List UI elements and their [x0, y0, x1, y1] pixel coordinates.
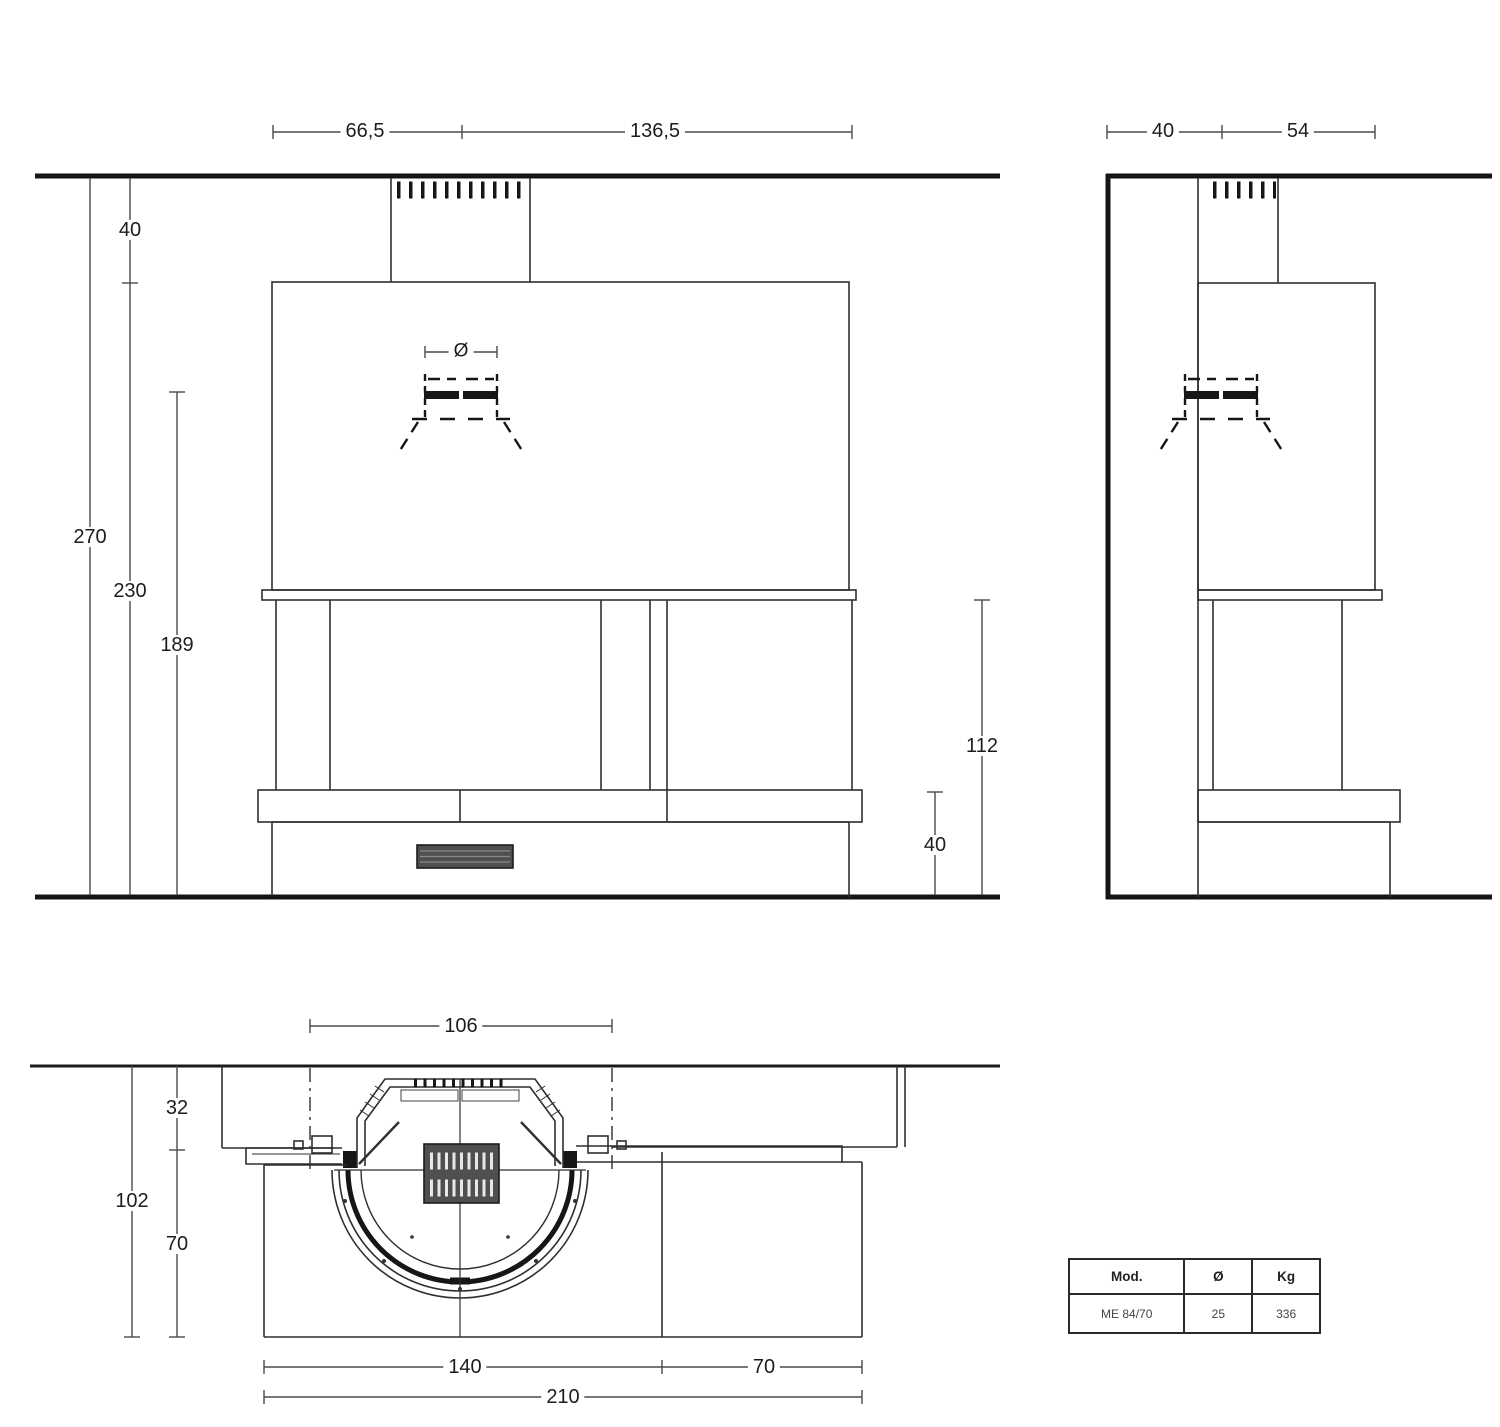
side-hood-plate [1198, 590, 1382, 600]
dim-front-base-height: 40 [919, 835, 951, 855]
spec-table: Mod. Ø Kg ME 84/70 25 336 [1068, 1258, 1321, 1334]
dim-front-wall-gap: 40 [114, 220, 146, 240]
spec-table-header-diameter: Ø [1184, 1259, 1252, 1294]
dim-plan-firebox-width: 140 [443, 1357, 486, 1377]
dim-plan-total-width: 210 [541, 1387, 584, 1407]
dim-front-left-width: 66,5 [341, 121, 390, 141]
spec-table-header-row: Mod. Ø Kg [1069, 1259, 1320, 1294]
side-view-drawing [1106, 125, 1492, 899]
technical-drawing-sheet: 66,5 136,5 Ø 40 270 230 189 112 40 40 54… [0, 0, 1500, 1427]
dim-front-hood-height: 230 [108, 581, 151, 601]
plan-view-drawing [30, 1019, 1000, 1404]
dim-plan-total-depth: 102 [110, 1191, 153, 1211]
fireplace-orthographic-drawing [0, 0, 1500, 1427]
dim-front-opening-height: 112 [961, 736, 1003, 756]
spec-table-header-weight: Kg [1252, 1259, 1320, 1294]
front-flue-collar [399, 374, 523, 452]
side-shelf [1198, 790, 1400, 822]
front-shelf [258, 790, 862, 822]
dim-plan-bench-width: 70 [748, 1357, 780, 1377]
dim-side-wall-depth: 40 [1147, 121, 1179, 141]
spec-table-data-row: ME 84/70 25 336 [1069, 1294, 1320, 1333]
plan-dimension-lines [124, 1019, 862, 1404]
dim-plan-inner-width: 106 [439, 1016, 482, 1036]
side-hood [1198, 283, 1375, 590]
flue-diameter-symbol: Ø [449, 342, 474, 361]
side-flue-collar [1159, 374, 1283, 452]
spec-table-model-value: ME 84/70 [1069, 1294, 1184, 1333]
front-view-drawing [35, 125, 1000, 897]
dim-front-total-height: 270 [68, 527, 111, 547]
dim-plan-side-depth: 32 [161, 1098, 193, 1118]
dim-plan-hearth-depth: 70 [161, 1234, 193, 1254]
dim-side-front-depth: 54 [1282, 121, 1314, 141]
dim-front-collar-height: 189 [155, 635, 198, 655]
front-hood [272, 282, 849, 590]
front-dimension-lines [90, 125, 990, 895]
spec-table-weight-value: 336 [1252, 1294, 1320, 1333]
dim-front-right-width: 136,5 [625, 121, 685, 141]
spec-table-diameter-value: 25 [1184, 1294, 1252, 1333]
spec-table-header-model: Mod. [1069, 1259, 1184, 1294]
front-hood-plate [262, 590, 856, 600]
